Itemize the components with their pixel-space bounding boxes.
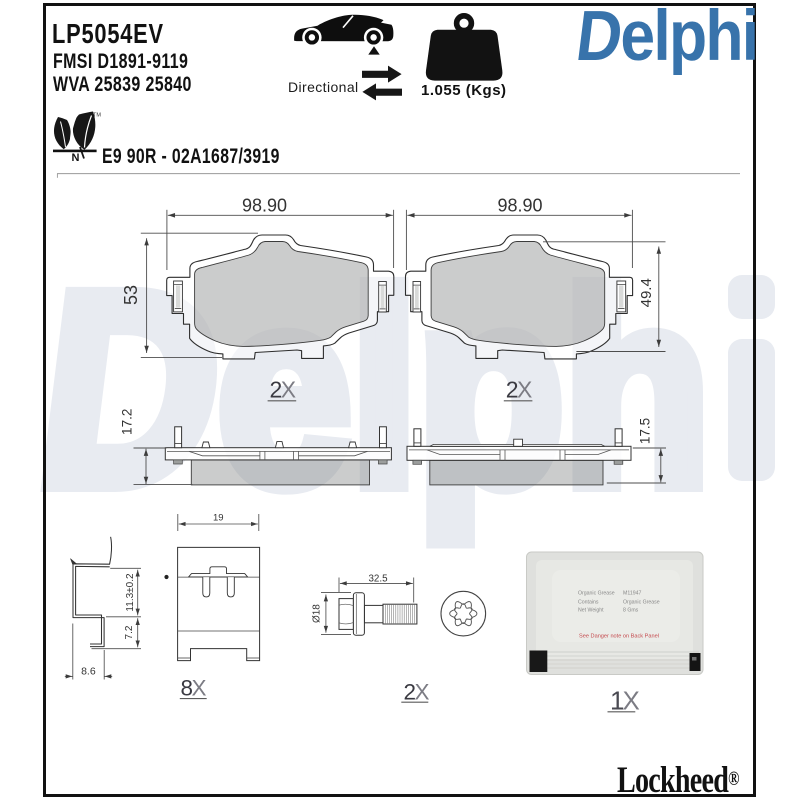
svg-text:17.5: 17.5: [638, 418, 653, 444]
svg-text:19: 19: [213, 513, 224, 524]
svg-text:8 Gms: 8 Gms: [623, 608, 639, 614]
svg-text:32.5: 32.5: [368, 574, 388, 585]
svg-text:Ø18: Ø18: [312, 604, 323, 623]
svg-text:7.2: 7.2: [124, 625, 135, 639]
svg-text:8.6: 8.6: [81, 666, 96, 678]
svg-text:M11947: M11947: [623, 591, 641, 597]
svg-text:2X: 2X: [506, 377, 532, 403]
svg-text:See Danger note on Back Panel: See Danger note on Back Panel: [579, 634, 659, 640]
svg-text:53: 53: [121, 285, 141, 305]
svg-text:98.90: 98.90: [242, 196, 287, 216]
svg-text:17.2: 17.2: [120, 409, 135, 435]
svg-text:Net Weight: Net Weight: [578, 608, 604, 614]
svg-text:11.3±0.2: 11.3±0.2: [125, 573, 136, 612]
svg-text:8X: 8X: [181, 676, 207, 701]
svg-text:49.4: 49.4: [638, 278, 655, 307]
svg-text:Contains: Contains: [578, 600, 599, 606]
svg-text:Organic Grease: Organic Grease: [578, 591, 615, 597]
svg-text:Organic Grease: Organic Grease: [623, 600, 660, 606]
svg-text:2X: 2X: [404, 680, 430, 705]
svg-text:2X: 2X: [270, 377, 296, 403]
svg-text:TM: TM: [93, 113, 101, 119]
svg-text:98.90: 98.90: [497, 196, 542, 216]
svg-text:1X: 1X: [610, 686, 639, 716]
svg-text:N: N: [72, 152, 80, 164]
